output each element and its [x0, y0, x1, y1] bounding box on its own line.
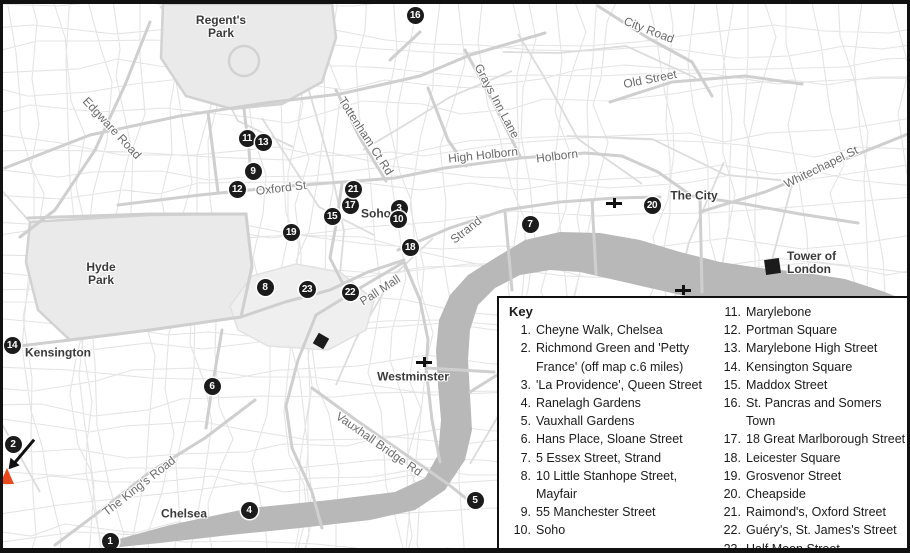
key-item-number: 20. [719, 485, 741, 503]
key-item-10: 10.Soho [509, 521, 719, 539]
key-item-number: 9. [509, 503, 531, 521]
map-marker-7[interactable]: 7 [522, 216, 539, 233]
place-label-soho: Soho [361, 208, 391, 221]
key-title: Key [509, 303, 719, 321]
key-item-2: 2.Richmond Green and 'Petty France' (off… [509, 339, 719, 375]
key-item-label: Leicester Square [741, 449, 907, 467]
church-cross-icon [606, 198, 622, 208]
key-item-label: Marylebone High Street [741, 339, 907, 357]
map-marker-19[interactable]: 19 [283, 224, 300, 241]
key-item-label: Guéry's, St. James's Street [741, 521, 907, 539]
key-item-label: 10 Little Stanhope Street, Mayfair [531, 467, 719, 503]
key-item-22: 22.Guéry's, St. James's Street [719, 521, 907, 539]
map-marker-14[interactable]: 14 [4, 337, 21, 354]
key-column-right: 11.Marylebone12.Portman Square13.Maryleb… [719, 303, 907, 547]
map-marker-2[interactable]: 2 [5, 436, 22, 453]
key-item-23: 23.Half Moon Street [719, 540, 907, 553]
key-item-number: 12. [719, 321, 741, 339]
key-item-21: 21.Raimond's, Oxford Street [719, 503, 907, 521]
key-item-number: 14. [719, 358, 741, 376]
key-item-number: 1. [509, 321, 531, 339]
key-item-label: Marylebone [741, 303, 907, 321]
place-label-chelsea: Chelsea [161, 508, 207, 521]
key-item-18: 18.Leicester Square [719, 449, 907, 467]
key-item-label: 18 Great Marlborough Street [741, 430, 907, 448]
key-item-label: St. Pancras and Somers Town [741, 394, 907, 430]
key-item-12: 12.Portman Square [719, 321, 907, 339]
map-marker-20[interactable]: 20 [644, 197, 661, 214]
key-item-label: Vauxhall Gardens [531, 412, 719, 430]
key-item-label: Kensington Square [741, 358, 907, 376]
key-item-3: 3.'La Providence', Queen Street [509, 376, 719, 394]
map-marker-6[interactable]: 6 [204, 378, 221, 395]
key-item-number: 8. [509, 467, 531, 503]
map-marker-13[interactable]: 13 [255, 134, 272, 151]
map-marker-8[interactable]: 8 [257, 279, 274, 296]
church-cross-icon [675, 285, 691, 295]
key-item-number: 17. [719, 430, 741, 448]
key-item-label: 55 Manchester Street [531, 503, 719, 521]
key-item-13: 13.Marylebone High Street [719, 339, 907, 357]
church-cross-icon [416, 357, 432, 367]
key-item-number: 7. [509, 449, 531, 467]
key-item-15: 15.Maddox Street [719, 376, 907, 394]
key-item-label: 'La Providence', Queen Street [531, 376, 719, 394]
key-item-19: 19.Grosvenor Street [719, 467, 907, 485]
key-item-number: 2. [509, 339, 531, 375]
key-item-label: Ranelagh Gardens [531, 394, 719, 412]
map-marker-4[interactable]: 4 [241, 502, 258, 519]
map-marker-12[interactable]: 12 [229, 181, 246, 198]
place-label-hyde-park: Hyde Park [86, 261, 115, 287]
key-item-number: 4. [509, 394, 531, 412]
key-item-label: Maddox Street [741, 376, 907, 394]
key-item-16: 16.St. Pancras and Somers Town [719, 394, 907, 430]
key-item-label: Soho [531, 521, 719, 539]
map-marker-22[interactable]: 22 [342, 284, 359, 301]
place-label-tower-of-london: Tower of London [787, 250, 836, 276]
place-label-kensington: Kensington [25, 347, 91, 360]
key-item-6: 6.Hans Place, Sloane Street [509, 430, 719, 448]
key-item-number: 19. [719, 467, 741, 485]
key-item-number: 15. [719, 376, 741, 394]
map-marker-18[interactable]: 18 [402, 239, 419, 256]
key-item-7: 7.5 Essex Street, Strand [509, 449, 719, 467]
key-item-number: 21. [719, 503, 741, 521]
key-item-label: Portman Square [741, 321, 907, 339]
key-item-label: Richmond Green and 'Petty France' (off m… [531, 339, 719, 375]
map-marker-9[interactable]: 9 [245, 163, 262, 180]
key-item-number: 6. [509, 430, 531, 448]
place-label-regent-s-park: Regent's Park [196, 14, 246, 40]
map-marker-17[interactable]: 17 [342, 197, 359, 214]
map-marker-16[interactable]: 16 [407, 7, 424, 24]
key-item-14: 14.Kensington Square [719, 358, 907, 376]
map-marker-5[interactable]: 5 [467, 492, 484, 509]
place-label-the-city: The City [670, 190, 717, 203]
key-item-11: 11.Marylebone [719, 303, 907, 321]
map-marker-21[interactable]: 21 [345, 181, 362, 198]
key-item-number: 18. [719, 449, 741, 467]
map-marker-1[interactable]: 1 [102, 533, 119, 550]
key-item-number: 13. [719, 339, 741, 357]
key-column-left: Key 1.Cheyne Walk, Chelsea2.Richmond Gre… [509, 303, 719, 547]
key-item-label: 5 Essex Street, Strand [531, 449, 719, 467]
key-item-label: Grosvenor Street [741, 467, 907, 485]
map-marker-10[interactable]: 10 [390, 211, 407, 228]
map-marker-23[interactable]: 23 [299, 281, 316, 298]
london-map: Edgware RoadTottenham Ct RdOxford StHigh… [0, 0, 910, 553]
key-item-label: Hans Place, Sloane Street [531, 430, 719, 448]
map-marker-11[interactable]: 11 [239, 130, 256, 147]
map-key: Key 1.Cheyne Walk, Chelsea2.Richmond Gre… [497, 296, 910, 553]
key-item-number: 3. [509, 376, 531, 394]
key-item-9: 9.55 Manchester Street [509, 503, 719, 521]
key-item-label: Cheyne Walk, Chelsea [531, 321, 719, 339]
key-item-label: Cheapside [741, 485, 907, 503]
key-item-number: 22. [719, 521, 741, 539]
key-item-label: Half Moon Street [741, 540, 907, 553]
key-item-number: 23. [719, 540, 741, 553]
key-item-number: 5. [509, 412, 531, 430]
key-item-number: 16. [719, 394, 741, 430]
key-item-20: 20.Cheapside [719, 485, 907, 503]
key-item-number: 11. [719, 303, 741, 321]
map-marker-15[interactable]: 15 [324, 208, 341, 225]
key-item-8: 8.10 Little Stanhope Street, Mayfair [509, 467, 719, 503]
key-item-5: 5.Vauxhall Gardens [509, 412, 719, 430]
key-item-1: 1.Cheyne Walk, Chelsea [509, 321, 719, 339]
key-item-label: Raimond's, Oxford Street [741, 503, 907, 521]
key-item-4: 4.Ranelagh Gardens [509, 394, 719, 412]
place-label-westminster: Westminster [377, 371, 449, 384]
tower-square-icon [764, 258, 781, 275]
key-item-number: 10. [509, 521, 531, 539]
key-item-17: 17.18 Great Marlborough Street [719, 430, 907, 448]
